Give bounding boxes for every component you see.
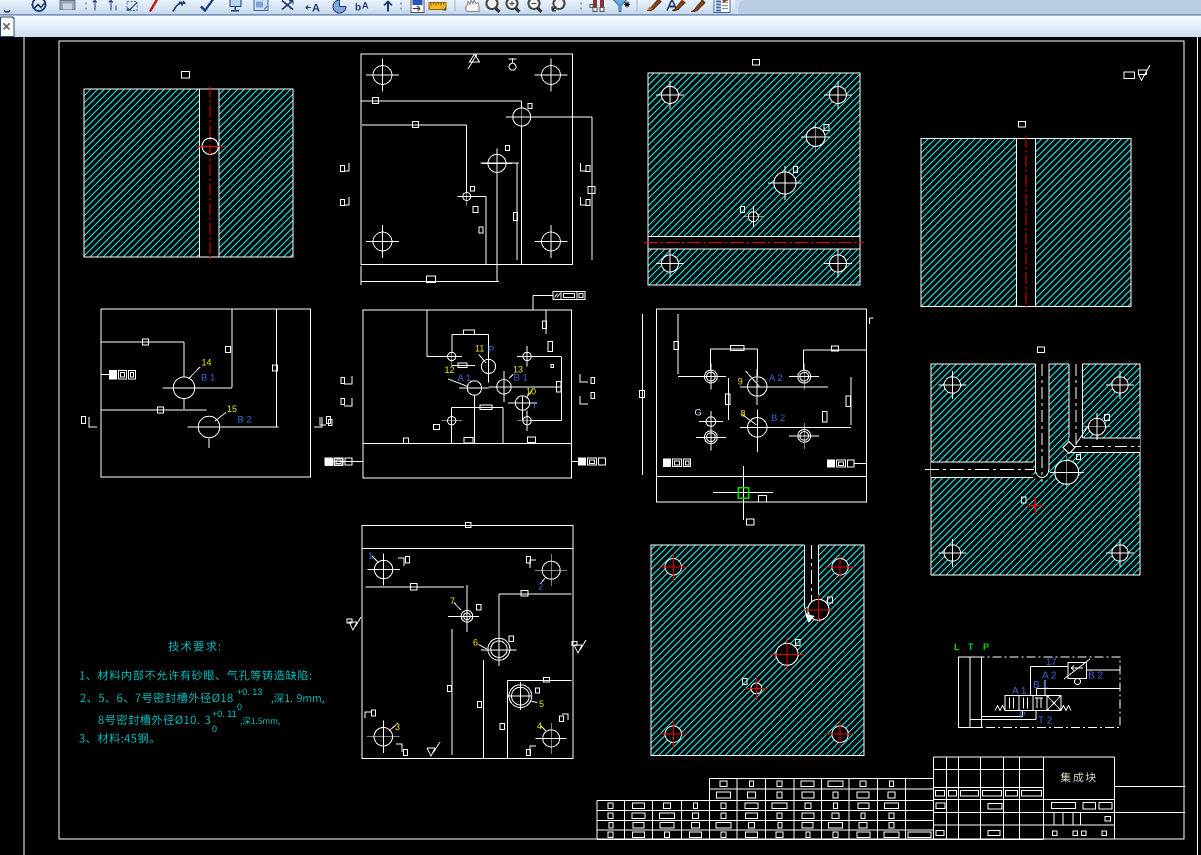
- svg-text:A 1: A 1: [458, 373, 472, 384]
- svg-text:10: 10: [526, 387, 536, 397]
- svg-text:T 2: T 2: [1038, 716, 1053, 727]
- svg-text:B 1: B 1: [1033, 680, 1048, 691]
- svg-text:8: 8: [741, 409, 746, 419]
- svg-text:+0. 11: +0. 11: [212, 709, 237, 719]
- svg-text:P: P: [488, 345, 494, 356]
- svg-text:P: P: [1019, 711, 1026, 722]
- svg-text:0: 0: [237, 702, 242, 712]
- svg-text:A 2: A 2: [769, 373, 783, 384]
- svg-text:3: 3: [395, 722, 400, 732]
- svg-text:B 2: B 2: [1088, 671, 1103, 682]
- svg-text:15: 15: [227, 404, 237, 414]
- svg-text:A 1: A 1: [1012, 686, 1027, 697]
- svg-text:4: 4: [537, 721, 542, 731]
- svg-text:b: b: [355, 3, 361, 14]
- svg-text:A: A: [312, 3, 320, 15]
- svg-text:1: 1: [368, 551, 373, 562]
- svg-text:B 2: B 2: [771, 413, 785, 424]
- svg-text:17: 17: [1046, 657, 1057, 668]
- svg-text:0: 0: [212, 724, 217, 734]
- svg-text:B 1: B 1: [514, 373, 528, 384]
- svg-text:G: G: [695, 408, 702, 419]
- svg-text:B 1: B 1: [201, 373, 215, 384]
- svg-text:2: 2: [538, 582, 543, 593]
- svg-text:11: 11: [475, 344, 484, 354]
- svg-text:5: 5: [539, 699, 544, 709]
- svg-text:14: 14: [202, 358, 212, 368]
- svg-text:L: L: [954, 642, 960, 652]
- svg-text:B 2: B 2: [238, 415, 252, 426]
- svg-text:+0. 13: +0. 13: [237, 687, 262, 697]
- svg-text:T: T: [532, 401, 538, 412]
- svg-text:9: 9: [738, 377, 743, 387]
- svg-text:A: A: [362, 1, 369, 11]
- svg-text:P: P: [983, 642, 989, 652]
- svg-text:7: 7: [450, 596, 455, 606]
- svg-text:T: T: [968, 642, 974, 652]
- svg-text:12: 12: [445, 365, 455, 375]
- svg-text:6: 6: [473, 638, 478, 648]
